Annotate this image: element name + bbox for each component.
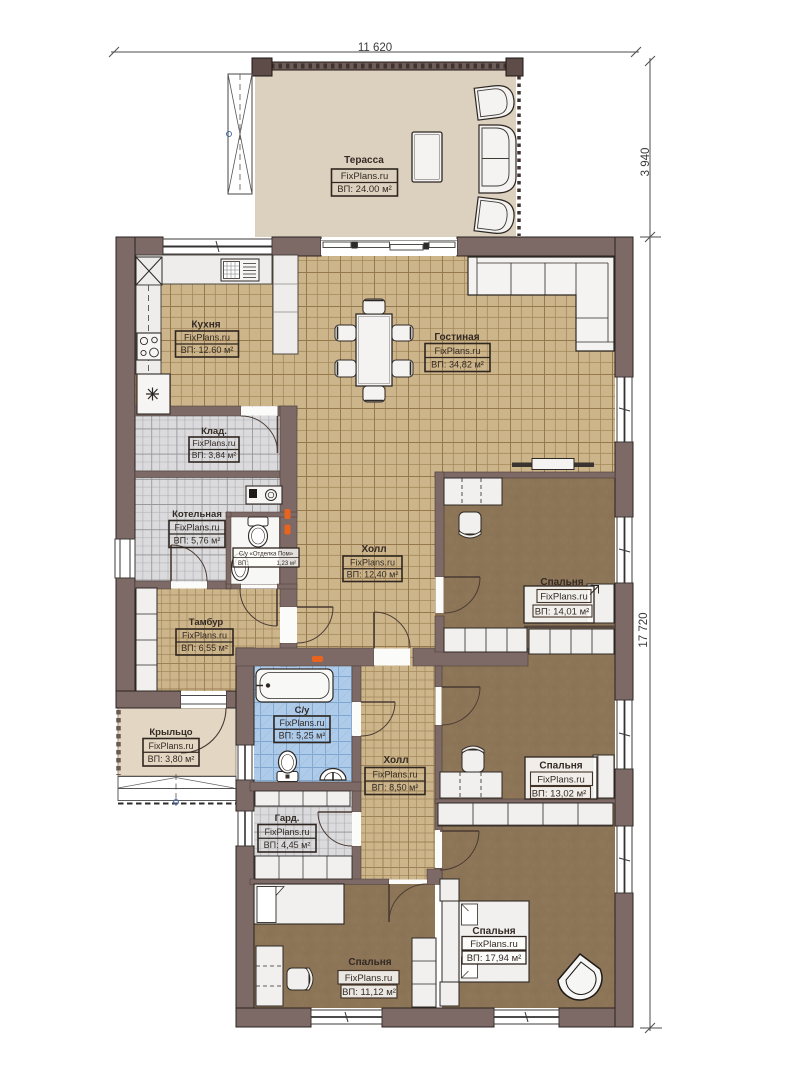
svg-text:ВП: 5,25 м²: ВП: 5,25 м²	[279, 731, 326, 741]
svg-text:ВП: 12,40 м²: ВП: 12,40 м²	[347, 570, 399, 580]
svg-text:FixPlans.ru: FixPlans.ru	[345, 973, 393, 984]
svg-text:ВП: 3,80 м²: ВП: 3,80 м²	[148, 754, 195, 764]
svg-text:FixPlans.ru: FixPlans.ru	[470, 939, 518, 950]
svg-text:ВП: 34,82 м²: ВП: 34,82 м²	[431, 360, 484, 370]
svg-text:Котельная: Котельная	[172, 509, 222, 520]
svg-text:FixPlans.ru: FixPlans.ru	[350, 557, 395, 567]
svg-text:FixPlans.ru: FixPlans.ru	[264, 827, 309, 837]
svg-text:Холл: Холл	[383, 755, 408, 766]
svg-text:Клад.: Клад.	[201, 426, 227, 437]
svg-text:Спальня: Спальня	[539, 761, 582, 772]
svg-text:FixPlans.ru: FixPlans.ru	[435, 346, 481, 356]
svg-text:11 620: 11 620	[358, 42, 392, 54]
svg-text:FixPlans.ru: FixPlans.ru	[193, 438, 236, 448]
svg-text:ВП: 4,45 м²: ВП: 4,45 м²	[264, 840, 311, 850]
svg-text:FixPlans.ru: FixPlans.ru	[537, 775, 585, 786]
svg-text:ВП: 12.60 м²: ВП: 12.60 м²	[181, 345, 234, 355]
svg-text:FixPlans.ru: FixPlans.ru	[279, 718, 324, 728]
svg-text:Гард.: Гард.	[275, 813, 300, 824]
svg-text:ВП: 17,94 м²: ВП: 17,94 м²	[467, 953, 522, 964]
svg-text:С/у «Отделка Пом»: С/у «Отделка Пом»	[239, 552, 294, 558]
svg-text:ВП:: ВП:	[238, 561, 248, 567]
svg-text:Кухня: Кухня	[191, 320, 220, 331]
svg-text:FixPlans.ru: FixPlans.ru	[148, 741, 193, 751]
svg-text:ВП: 11,12 м²: ВП: 11,12 м²	[342, 987, 396, 998]
svg-text:ВП: 3,84 м²: ВП: 3,84 м²	[192, 450, 237, 460]
svg-text:Спальня: Спальня	[472, 926, 515, 937]
svg-text:Крыльцо: Крыльцо	[149, 727, 192, 738]
svg-text:Тамбур: Тамбур	[189, 617, 224, 628]
svg-text:FixPlans.ru: FixPlans.ru	[341, 171, 389, 182]
svg-text:Терасса: Терасса	[344, 155, 384, 166]
svg-text:ВП: 8,50 м²: ВП: 8,50 м²	[372, 783, 419, 793]
svg-text:Гостиная: Гостиная	[434, 332, 479, 343]
svg-text:1,23 м²: 1,23 м²	[277, 561, 296, 567]
svg-text:ВП: 14,01 м²: ВП: 14,01 м²	[535, 607, 590, 618]
svg-text:FixPlans.ru: FixPlans.ru	[182, 631, 227, 641]
svg-text:FixPlans.ru: FixPlans.ru	[184, 333, 230, 343]
svg-text:ВП: 13,02 м²: ВП: 13,02 м²	[532, 789, 587, 800]
svg-text:FixPlans.ru: FixPlans.ru	[540, 592, 588, 603]
svg-text:FixPlans.ru: FixPlans.ru	[372, 770, 417, 780]
svg-text:С/у: С/у	[295, 705, 311, 716]
svg-text:3 940: 3 940	[640, 148, 652, 177]
svg-text:FixPlans.ru: FixPlans.ru	[174, 523, 219, 533]
svg-text:17 720: 17 720	[638, 612, 650, 647]
svg-text:ВП: 5,76 м²: ВП: 5,76 м²	[174, 536, 221, 546]
svg-text:ВП: 6,55 м²: ВП: 6,55 м²	[181, 643, 228, 653]
svg-text:ВП: 24.00 м²: ВП: 24.00 м²	[337, 184, 392, 195]
svg-text:Спальня: Спальня	[348, 957, 391, 968]
svg-text:Холл: Холл	[361, 544, 386, 555]
